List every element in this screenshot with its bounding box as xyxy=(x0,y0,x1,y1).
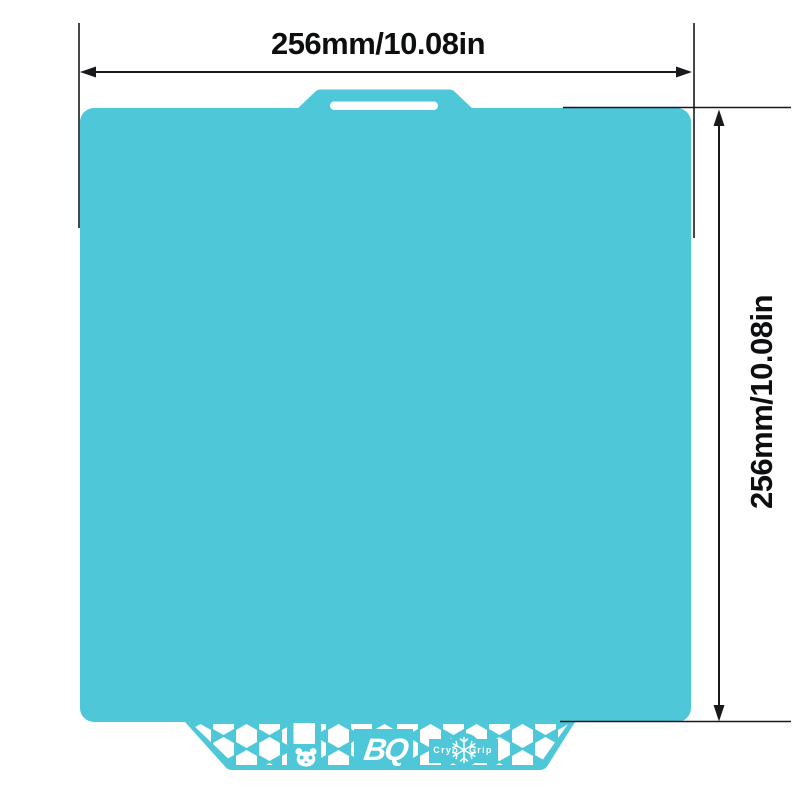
brand-text-right: Grip xyxy=(469,745,493,755)
arrow-right-icon xyxy=(676,67,692,78)
biqu-logo-text: BQ xyxy=(362,732,411,767)
plate-diagram: BQ xyxy=(0,0,800,800)
biqu-logo: BQ xyxy=(362,732,411,767)
build-plate: BQ xyxy=(80,90,691,771)
width-dimension-label: 256mm/10.08in xyxy=(271,26,485,62)
arrow-left-icon xyxy=(80,67,96,78)
square-cutout xyxy=(294,723,316,744)
handle-slot xyxy=(330,102,438,111)
arrow-down-icon xyxy=(714,705,725,722)
plate-surface xyxy=(80,108,691,722)
arrow-up-icon xyxy=(714,110,725,127)
height-dimension-label: 256mm/10.08in xyxy=(744,295,780,509)
brand-text-left: Cryo xyxy=(433,745,459,755)
